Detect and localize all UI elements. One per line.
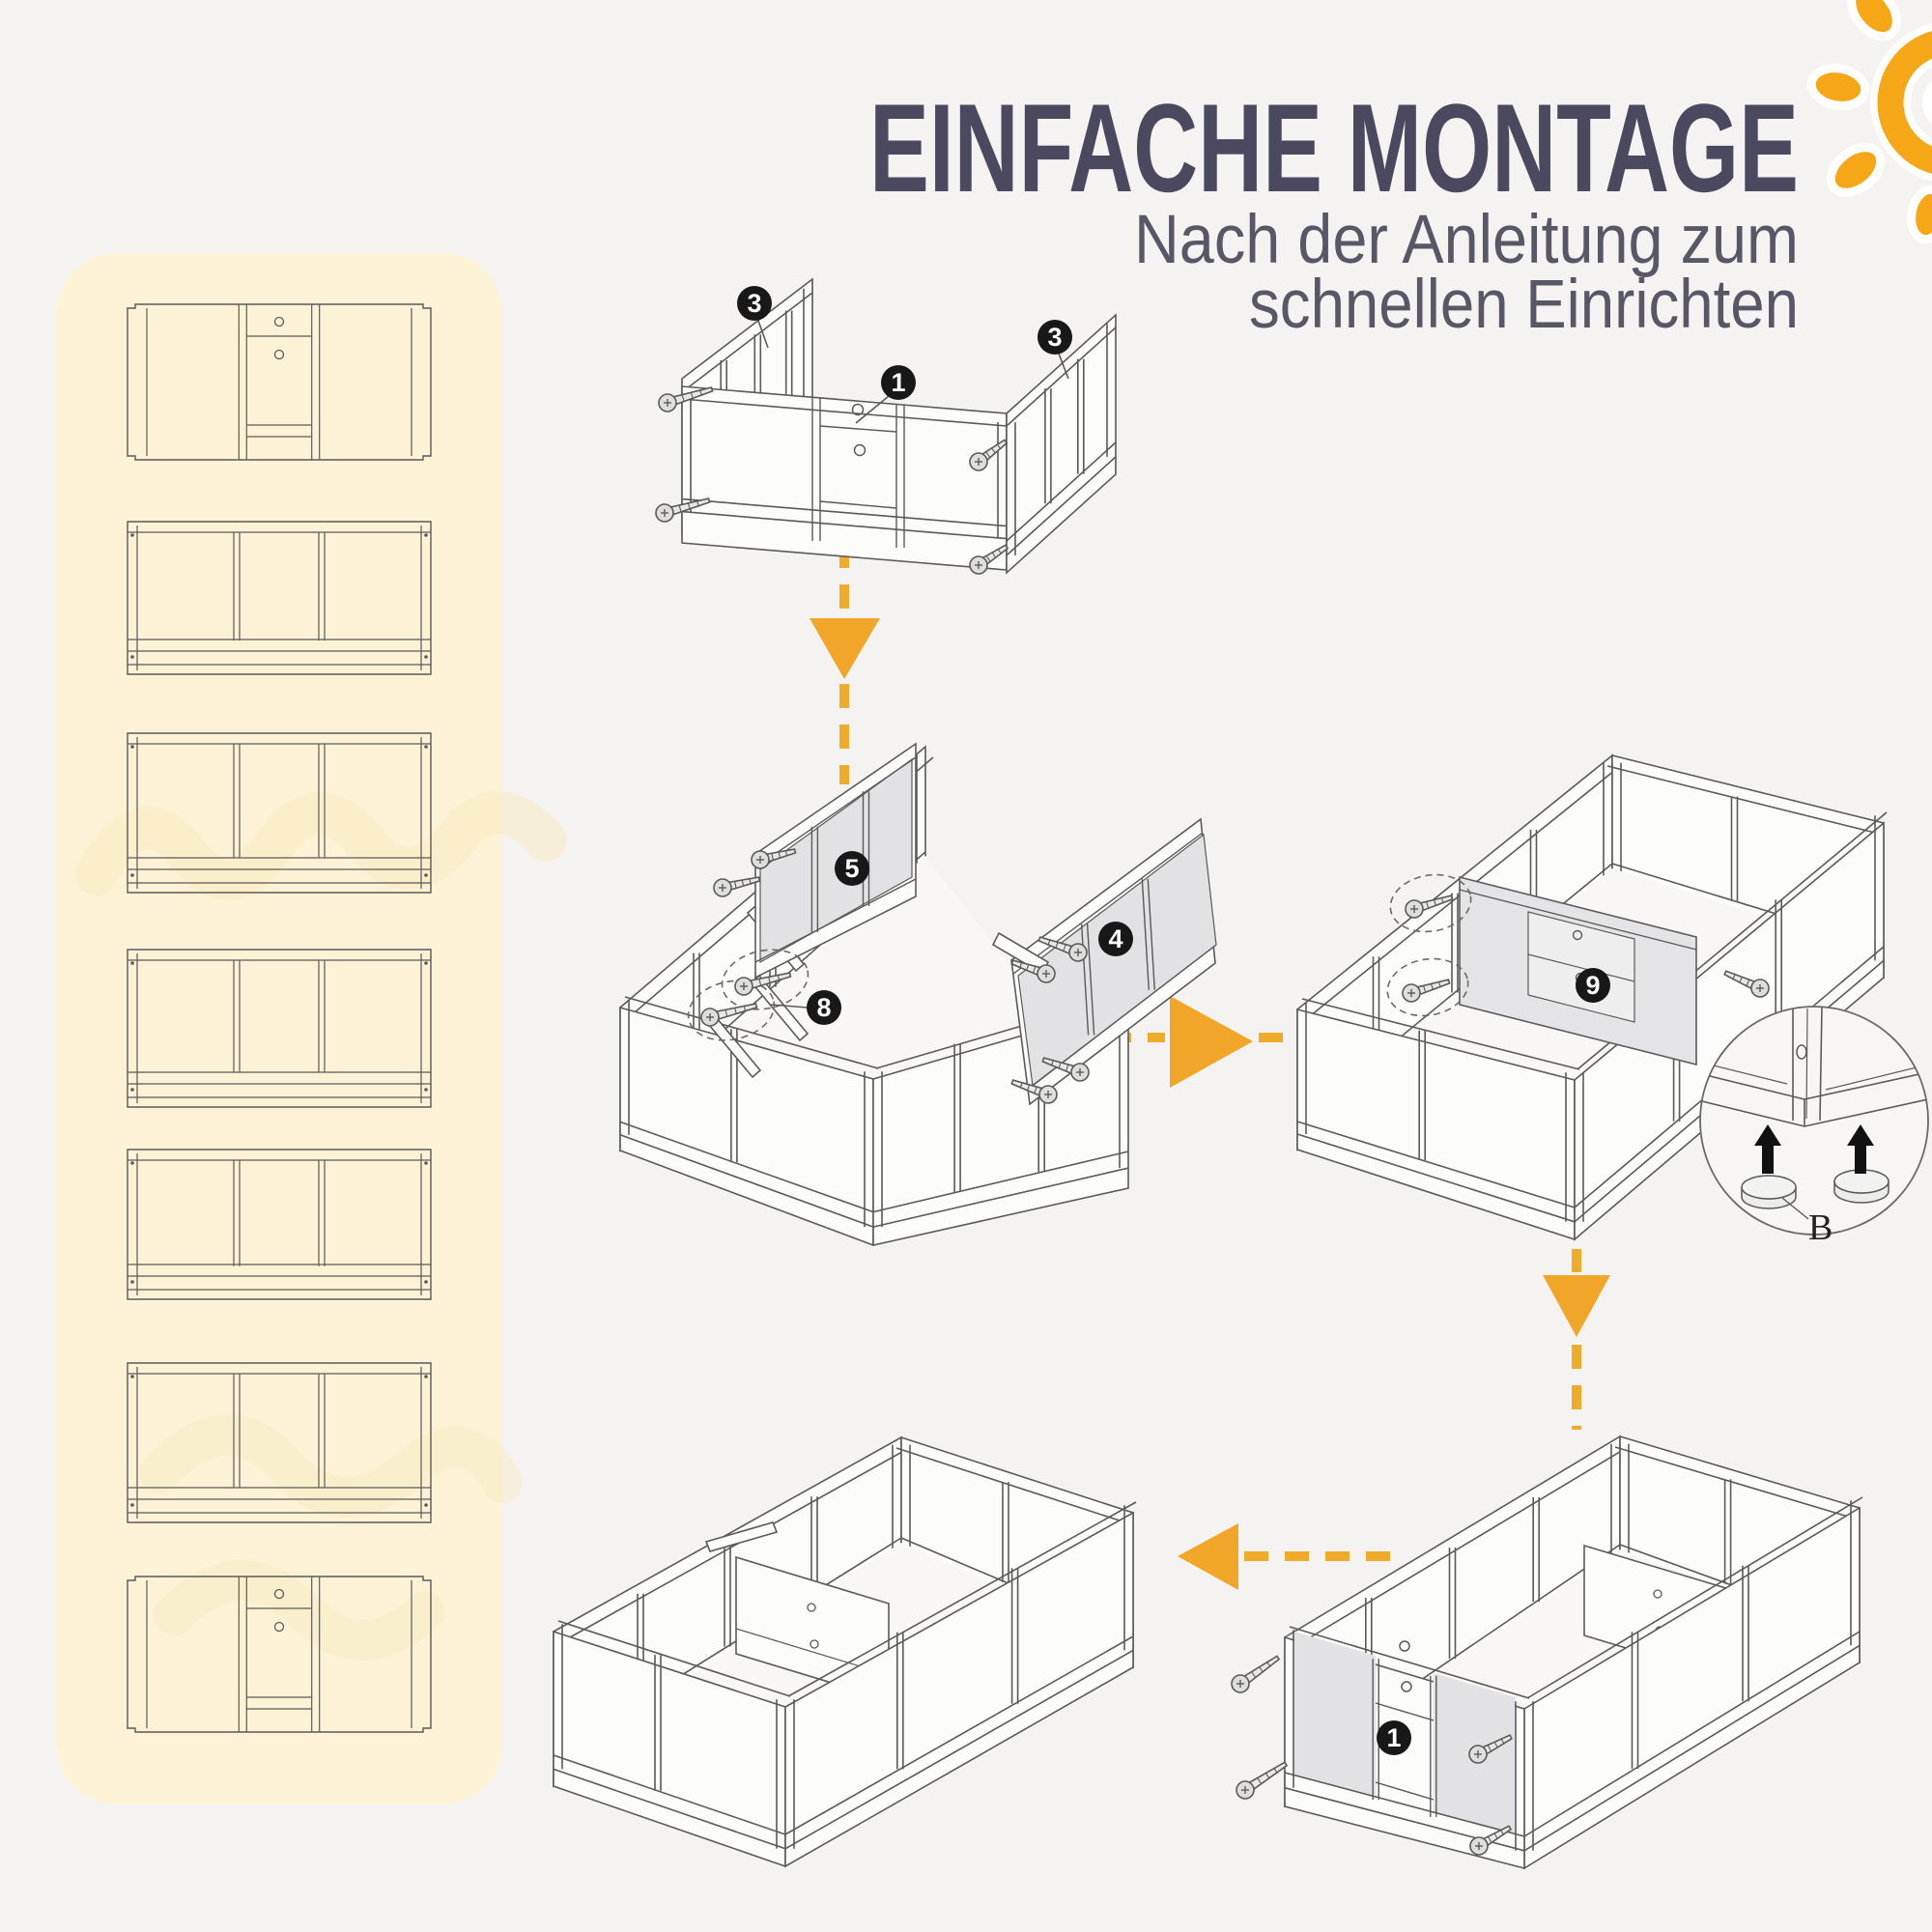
svg-text:EINFACHE MONTAGE: EINFACHE MONTAGE xyxy=(869,77,1799,218)
svg-text:4: 4 xyxy=(1108,924,1122,953)
svg-text:1: 1 xyxy=(1386,1723,1401,1752)
svg-text:schnellen Einrichten: schnellen Einrichten xyxy=(1249,267,1799,343)
svg-text:3: 3 xyxy=(1047,323,1062,352)
svg-text:5: 5 xyxy=(844,854,859,883)
svg-text:8: 8 xyxy=(816,993,831,1022)
svg-text:9: 9 xyxy=(1585,971,1600,1000)
svg-text:B: B xyxy=(1808,1207,1833,1248)
svg-text:1: 1 xyxy=(891,368,905,397)
svg-text:3: 3 xyxy=(747,289,761,318)
